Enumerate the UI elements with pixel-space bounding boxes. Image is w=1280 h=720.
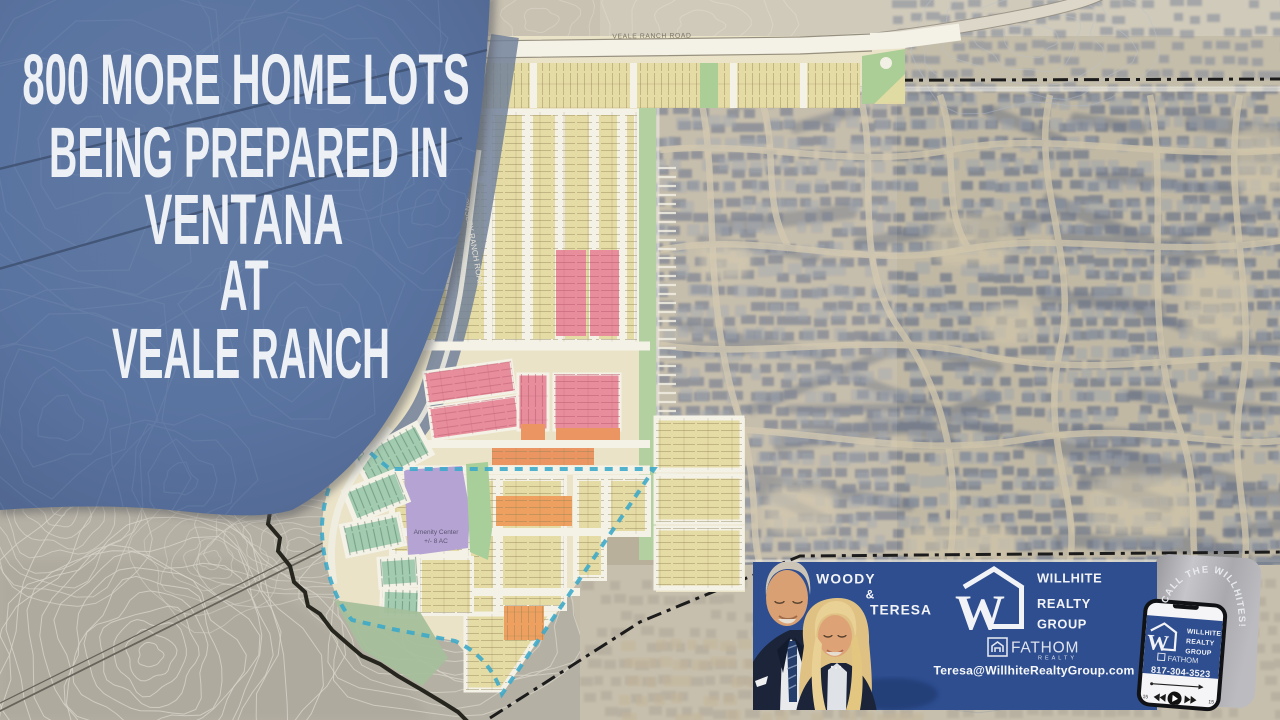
svg-text:Teresa@WillhiteRealtyGroup.com: Teresa@WillhiteRealtyGroup.com [933, 664, 1134, 678]
svg-text:WOODY: WOODY [816, 572, 876, 587]
svg-text:&: & [866, 588, 875, 602]
svg-text:REALTY: REALTY [1038, 656, 1077, 662]
svg-text:FATHOM: FATHOM [1011, 640, 1079, 657]
svg-text:GROUP: GROUP [1037, 617, 1087, 632]
svg-text:TERESA: TERESA [870, 603, 932, 618]
svg-text:WILLHITE: WILLHITE [1037, 571, 1102, 586]
svg-text:15: 15 [1142, 694, 1148, 700]
svg-text:W: W [955, 584, 1005, 640]
svg-text:W: W [1146, 629, 1170, 656]
svg-text:15: 15 [1208, 699, 1214, 705]
svg-text:REALTY: REALTY [1037, 596, 1091, 611]
